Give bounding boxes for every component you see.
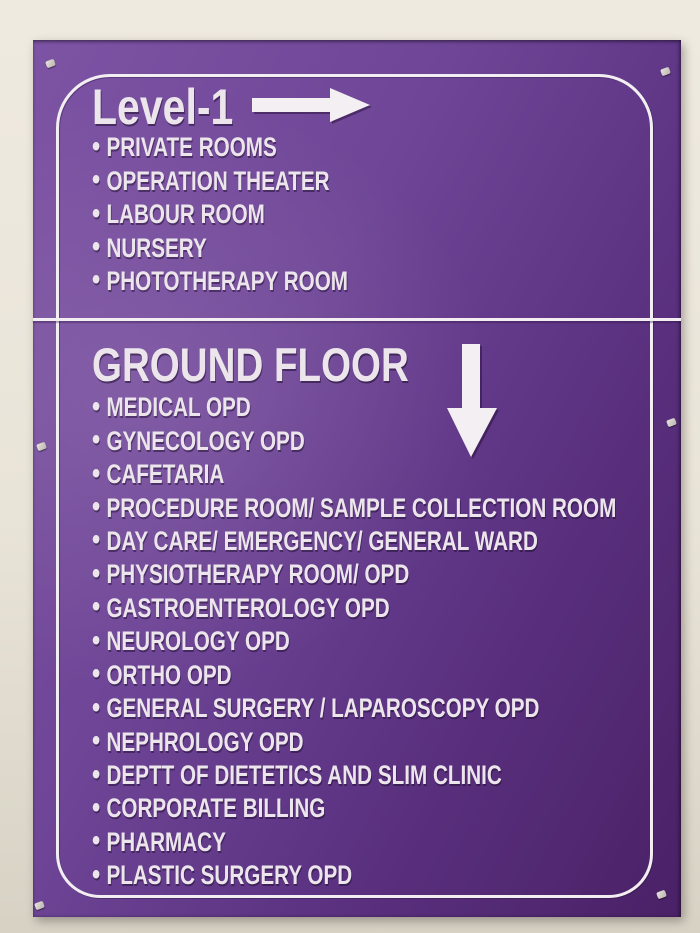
list-item: • PHYSIOTHERAPY ROOM/ OPD: [92, 558, 616, 591]
bullet-icon: •: [92, 459, 100, 489]
list-item: • CAFETARIA: [92, 458, 616, 491]
bullet-icon: •: [92, 165, 100, 195]
list-item: • NEPHROLOGY OPD: [92, 725, 616, 758]
list-item: • PHARMACY: [92, 826, 616, 859]
list-item: • GYNECOLOGY OPD: [92, 424, 616, 457]
list-item: • OPERATION THEATER: [92, 164, 348, 197]
list-item: • NURSERY: [92, 231, 348, 264]
list-item: • PRIVATE ROOMS: [92, 131, 348, 164]
screw-top-left: [45, 59, 56, 69]
list-item-label: PHOTOTHERAPY ROOM: [106, 266, 348, 297]
list-item: • DAY CARE/ EMERGENCY/ GENERAL WARD: [92, 525, 616, 558]
screw-bottom-left: [34, 901, 45, 911]
list-item-label: MEDICAL OPD: [106, 392, 250, 423]
ground-floor-list: • MEDICAL OPD • GYNECOLOGY OPD • CAFETAR…: [92, 391, 700, 893]
list-item: • PROCEDURE ROOM/ SAMPLE COLLECTION ROOM: [92, 491, 616, 524]
right-arrow-icon: [250, 86, 372, 124]
section-title-ground-floor: GROUND FLOOR: [92, 337, 409, 392]
screw-middle-left: [36, 442, 47, 452]
list-item-label: CORPORATE BILLING: [106, 793, 325, 824]
bullet-icon: •: [92, 826, 100, 856]
list-item-label: PHYSIOTHERAPY ROOM/ OPD: [106, 559, 409, 590]
list-item-label: PHARMACY: [106, 827, 225, 858]
bullet-icon: •: [92, 659, 100, 689]
list-item: • PLASTIC SURGERY OPD: [92, 859, 616, 892]
bullet-icon: •: [92, 860, 100, 890]
bullet-icon: •: [92, 232, 100, 262]
bullet-icon: •: [92, 626, 100, 656]
list-item-label: PROCEDURE ROOM/ SAMPLE COLLECTION ROOM: [106, 493, 616, 524]
list-item: • CORPORATE BILLING: [92, 792, 616, 825]
bullet-icon: •: [92, 726, 100, 756]
wall: Level-1 • PRIVATE ROOMS • OPERATION THEA…: [0, 0, 700, 933]
bullet-icon: •: [92, 199, 100, 229]
list-item: • MEDICAL OPD: [92, 391, 616, 424]
list-item-label: NEUROLOGY OPD: [106, 626, 289, 657]
list-item-label: PLASTIC SURGERY OPD: [106, 860, 352, 891]
bullet-icon: •: [92, 492, 100, 522]
list-item-label: ORTHO OPD: [106, 660, 231, 691]
list-item-label: PRIVATE ROOMS: [106, 132, 276, 163]
list-item-label: DEPTT OF DIETETICS AND SLIM CLINIC: [106, 760, 501, 791]
list-item-label: GASTROENTEROLOGY OPD: [106, 593, 389, 624]
list-item: • LABOUR ROOM: [92, 198, 348, 231]
list-item: • GENERAL SURGERY / LAPAROSCOPY OPD: [92, 692, 616, 725]
screw-bottom-right: [656, 890, 667, 900]
list-item-label: LABOUR ROOM: [106, 199, 264, 230]
list-item-label: NEPHROLOGY OPD: [106, 727, 303, 758]
bullet-icon: •: [92, 559, 100, 589]
bullet-icon: •: [92, 693, 100, 723]
screw-top-right: [660, 67, 671, 77]
section-divider-line: [33, 318, 681, 321]
sign-board: Level-1 • PRIVATE ROOMS • OPERATION THEA…: [33, 40, 681, 917]
list-item: • DEPTT OF DIETETICS AND SLIM CLINIC: [92, 759, 616, 792]
bullet-icon: •: [92, 392, 100, 422]
list-item: • GASTROENTEROLOGY OPD: [92, 592, 616, 625]
bullet-icon: •: [92, 265, 100, 295]
list-item-label: CAFETARIA: [106, 459, 224, 490]
list-item-label: GYNECOLOGY OPD: [106, 426, 304, 457]
list-item-label: OPERATION THEATER: [106, 166, 329, 197]
list-item-label: NURSERY: [106, 233, 206, 264]
bullet-icon: •: [92, 592, 100, 622]
list-item: • NEUROLOGY OPD: [92, 625, 616, 658]
bullet-icon: •: [92, 793, 100, 823]
list-item: • PHOTOTHERAPY ROOM: [92, 265, 348, 298]
bullet-icon: •: [92, 425, 100, 455]
bullet-icon: •: [92, 132, 100, 162]
list-item-label: DAY CARE/ EMERGENCY/ GENERAL WARD: [106, 526, 537, 557]
list-item: • ORTHO OPD: [92, 659, 616, 692]
bullet-icon: •: [92, 525, 100, 555]
bullet-icon: •: [92, 760, 100, 790]
list-item-label: GENERAL SURGERY / LAPAROSCOPY OPD: [106, 693, 539, 724]
level-1-list: • PRIVATE ROOMS • OPERATION THEATER • LA…: [92, 131, 420, 298]
section-title-level-1: Level-1: [92, 78, 233, 136]
